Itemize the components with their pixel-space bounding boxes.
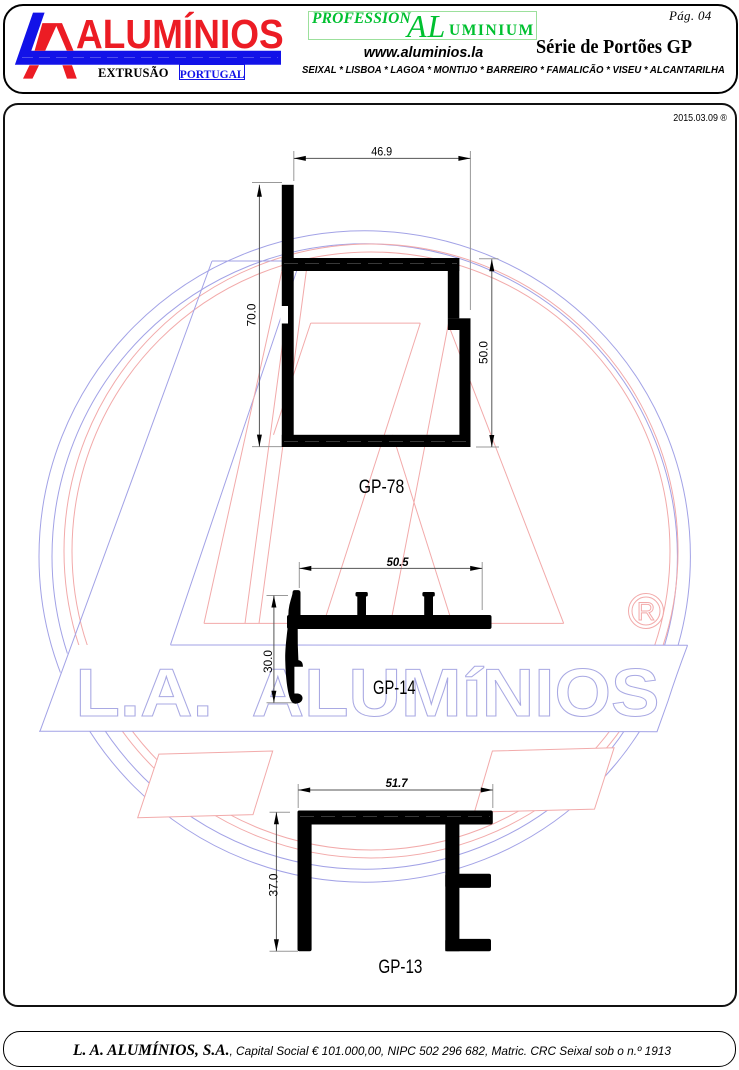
svg-text:30.0: 30.0 (261, 650, 275, 673)
svg-text:GP-78: GP-78 (359, 476, 405, 498)
svg-text:R: R (637, 598, 655, 626)
svg-text:GP-13: GP-13 (378, 956, 422, 978)
svg-text:46.9: 46.9 (371, 145, 392, 159)
svg-text:L.A. ALUMíNIOS: L.A. ALUMíNIOS (76, 655, 660, 731)
svg-text:70.0: 70.0 (245, 303, 259, 326)
svg-text:GP-14: GP-14 (373, 677, 416, 699)
svg-text:50.5: 50.5 (387, 555, 409, 569)
svg-text:50.0: 50.0 (477, 341, 491, 364)
svg-text:37.0: 37.0 (266, 873, 280, 896)
svg-text:51.7: 51.7 (386, 776, 409, 790)
